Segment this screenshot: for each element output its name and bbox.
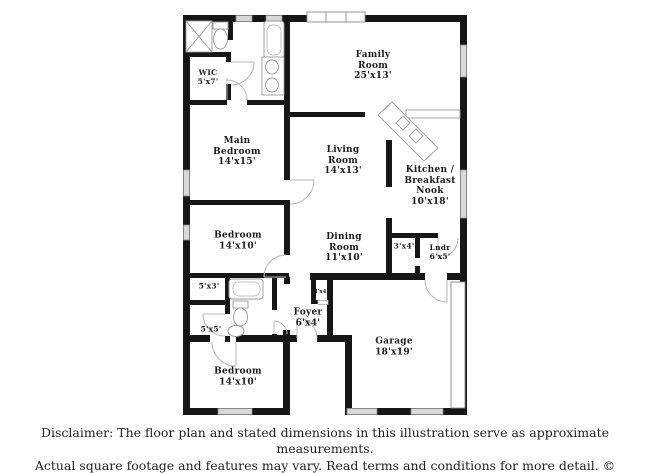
room-dims: 14'x10': [214, 241, 262, 252]
room-dims: 14'x15': [213, 157, 261, 168]
room-dims: 4'x4': [314, 289, 328, 295]
bay-window: [307, 12, 365, 22]
room-dims: 6'x5': [430, 253, 451, 262]
room-dims: 6'x4': [294, 318, 323, 329]
room-label-living-room: Living Room 14'x13': [324, 145, 362, 177]
disclaimer-line-2: Actual square footage and features may v…: [0, 458, 650, 473]
room-name: Foyer: [294, 307, 323, 318]
room-name: Room: [354, 61, 392, 72]
room-label-closet-4x4: 4'x4': [314, 289, 328, 295]
room-dims: 11'x10': [325, 253, 363, 264]
room-dims: 14'x13': [324, 166, 362, 177]
room-name: Dining: [325, 232, 363, 243]
room-label-closet-5x5: 5'x5': [201, 326, 222, 335]
room-label-foyer: Foyer 6'x4': [294, 307, 323, 328]
room-dims: 10'x18': [404, 197, 455, 208]
room-label-garage: Garage 18'x19': [375, 336, 413, 357]
room-label-closet-5x3: 5'x3': [199, 283, 220, 292]
room-name: Breakfast: [404, 175, 455, 186]
room-dims: 3'x4': [394, 243, 415, 252]
room-label-wic: WIC 5'x7': [198, 69, 219, 87]
windows: [184, 16, 467, 415]
room-name: Bedroom: [214, 366, 262, 377]
room-name: Living: [324, 145, 362, 156]
room-label-main-bedroom: Main Bedroom 14'x15': [213, 136, 261, 168]
room-dims: 25'x13': [354, 71, 392, 82]
main-bath-shower: [186, 21, 212, 52]
room-name: Room: [325, 243, 363, 254]
room-label-family-room: Family Room 25'x13': [354, 50, 392, 82]
walls: [183, 15, 467, 415]
main-bath-toilet: [213, 22, 228, 49]
room-name: Nook: [404, 186, 455, 197]
room-name: Kitchen /: [404, 165, 455, 176]
room-label-kitchen: Kitchen / Breakfast Nook 10'x18': [404, 165, 455, 207]
room-name: Family: [354, 50, 392, 61]
garage-door-panel: [451, 282, 465, 408]
room-dims: 5'x5': [201, 326, 222, 335]
hall-bath-toilet: [233, 301, 248, 326]
room-label-dining-room: Dining Room 11'x10': [325, 232, 363, 264]
hall-bath-sink: [228, 326, 244, 337]
room-dims: 5'x3': [199, 283, 220, 292]
floor-plan-page: WIC 5'x7' Family Room 25'x13' Main Bedro…: [0, 0, 650, 473]
hall-bathtub: [229, 279, 263, 299]
disclaimer-line-1: Disclaimer: The floor plan and stated di…: [0, 425, 650, 458]
room-name: Room: [324, 156, 362, 167]
room-name: Bedroom: [213, 147, 261, 158]
room-label-bedroom-2: Bedroom 14'x10': [214, 230, 262, 251]
room-label-bedroom-3: Bedroom 14'x10': [214, 366, 262, 387]
coat-closet-door-leaf: [318, 301, 328, 305]
room-dims: 18'x19': [375, 347, 413, 358]
room-name: Bedroom: [214, 230, 262, 241]
main-bath-vanity-sinks: [262, 57, 284, 95]
disclaimer: Disclaimer: The floor plan and stated di…: [0, 425, 650, 473]
room-name: Main: [213, 136, 261, 147]
room-label-closet-3x4: 3'x4': [394, 243, 415, 252]
main-bathtub: [264, 21, 284, 58]
room-dims: 14'x10': [214, 377, 262, 388]
room-dims: 5'x7': [198, 78, 219, 87]
room-label-laundry: Lndr 6'x5': [430, 244, 451, 262]
room-name: Garage: [375, 336, 413, 347]
